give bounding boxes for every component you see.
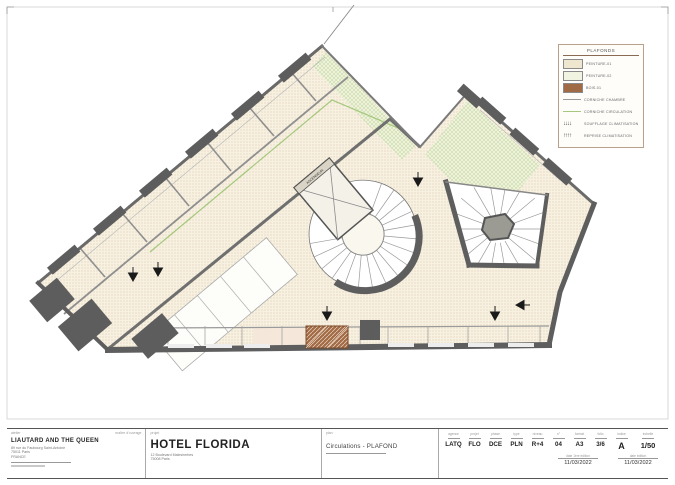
legend-title: PLAFONDS (563, 48, 639, 56)
drawing-header: plan (326, 431, 333, 435)
legend-item-corniche-chambre: CORNICHE CHAMBRE (563, 95, 639, 104)
corniche-circulation-line (563, 111, 581, 112)
legend-box: PLAFONDS PEINTURE-01 PEINTURE-02 BOIS-01… (558, 44, 644, 148)
code-phase: phase DCE (485, 432, 506, 451)
legend-item-corniche-circulation: CORNICHE CIRCULATION (563, 107, 639, 116)
divider (326, 453, 386, 454)
drawing-sheet: ASCENSEUR (0, 0, 675, 485)
code-agence: agence LATQ (443, 432, 464, 451)
wood-ceiling-zone (306, 326, 348, 348)
boundary-line (324, 5, 354, 44)
bois01-swatch (563, 83, 583, 93)
project-header: projet (150, 431, 159, 435)
code-type: type PLN (506, 432, 527, 451)
code-folio: folio 3/6 (590, 432, 611, 451)
corniche-chambre-line (563, 99, 581, 100)
code-indice: indice A (611, 432, 632, 451)
architect-name: LIAUTARD AND THE QUEEN (11, 438, 141, 444)
dates-row: date 1ère édition 11/03/2022 date éditio… (552, 454, 664, 466)
code-format: format A3 (569, 432, 590, 451)
legend-item-soufflage: ↓↓↓↓ SOUFFLAGE CLIMATISATION (563, 119, 639, 128)
title-block: atelier maître d'ouvrage LIAUTARD AND TH… (7, 428, 668, 479)
reprise-arrows-icon: ↑↑↑↑ (563, 133, 581, 139)
code-echelle: échelle 1/50 (632, 432, 664, 451)
project-block: projet HOTEL FLORIDA 12 Boulevard Malesh… (146, 429, 321, 478)
peinture01-swatch (563, 59, 583, 69)
client-header: maître d'ouvrage (115, 431, 141, 435)
codes-block: agence LATQ projet FLO phase DCE type PL… (439, 429, 668, 478)
legend-item-peinture01: PEINTURE-01 (563, 59, 639, 68)
drawing-title: Circulations - PLAFOND (326, 443, 434, 450)
code-numero: n° 04 (548, 432, 569, 451)
soufflage-arrows-icon: ↓↓↓↓ (563, 121, 581, 127)
project-name: HOTEL FLORIDA (150, 439, 316, 451)
contact-stub (11, 465, 45, 467)
code-niveau: niveau R+4 (527, 432, 548, 451)
peinture02-swatch (563, 71, 583, 81)
legend-item-reprise: ↑↑↑↑ REPRISE CLIMATISATION (563, 131, 639, 140)
divider (11, 462, 71, 463)
date-first-edition: date 1ère édition 11/03/2022 (552, 454, 604, 466)
architect-address: 89 rue du Faubourg Saint-Antoine 75011 P… (11, 446, 141, 459)
code-projet: projet FLO (464, 432, 485, 451)
legend-item-peinture02: PEINTURE-02 (563, 71, 639, 80)
project-address: 12 Boulevard Malesherbes 75008 Paris (150, 453, 316, 462)
architect-header: atelier (11, 431, 21, 435)
codes-row: agence LATQ projet FLO phase DCE type PL… (443, 432, 664, 451)
fan-stair-core (482, 214, 514, 240)
drawing-title-block: plan Circulations - PLAFOND (322, 429, 439, 478)
architect-block: atelier maître d'ouvrage LIAUTARD AND TH… (7, 429, 146, 478)
legend-item-bois01: BOIS-01 (563, 83, 639, 92)
date-edition: date édition 11/03/2022 (612, 454, 664, 466)
